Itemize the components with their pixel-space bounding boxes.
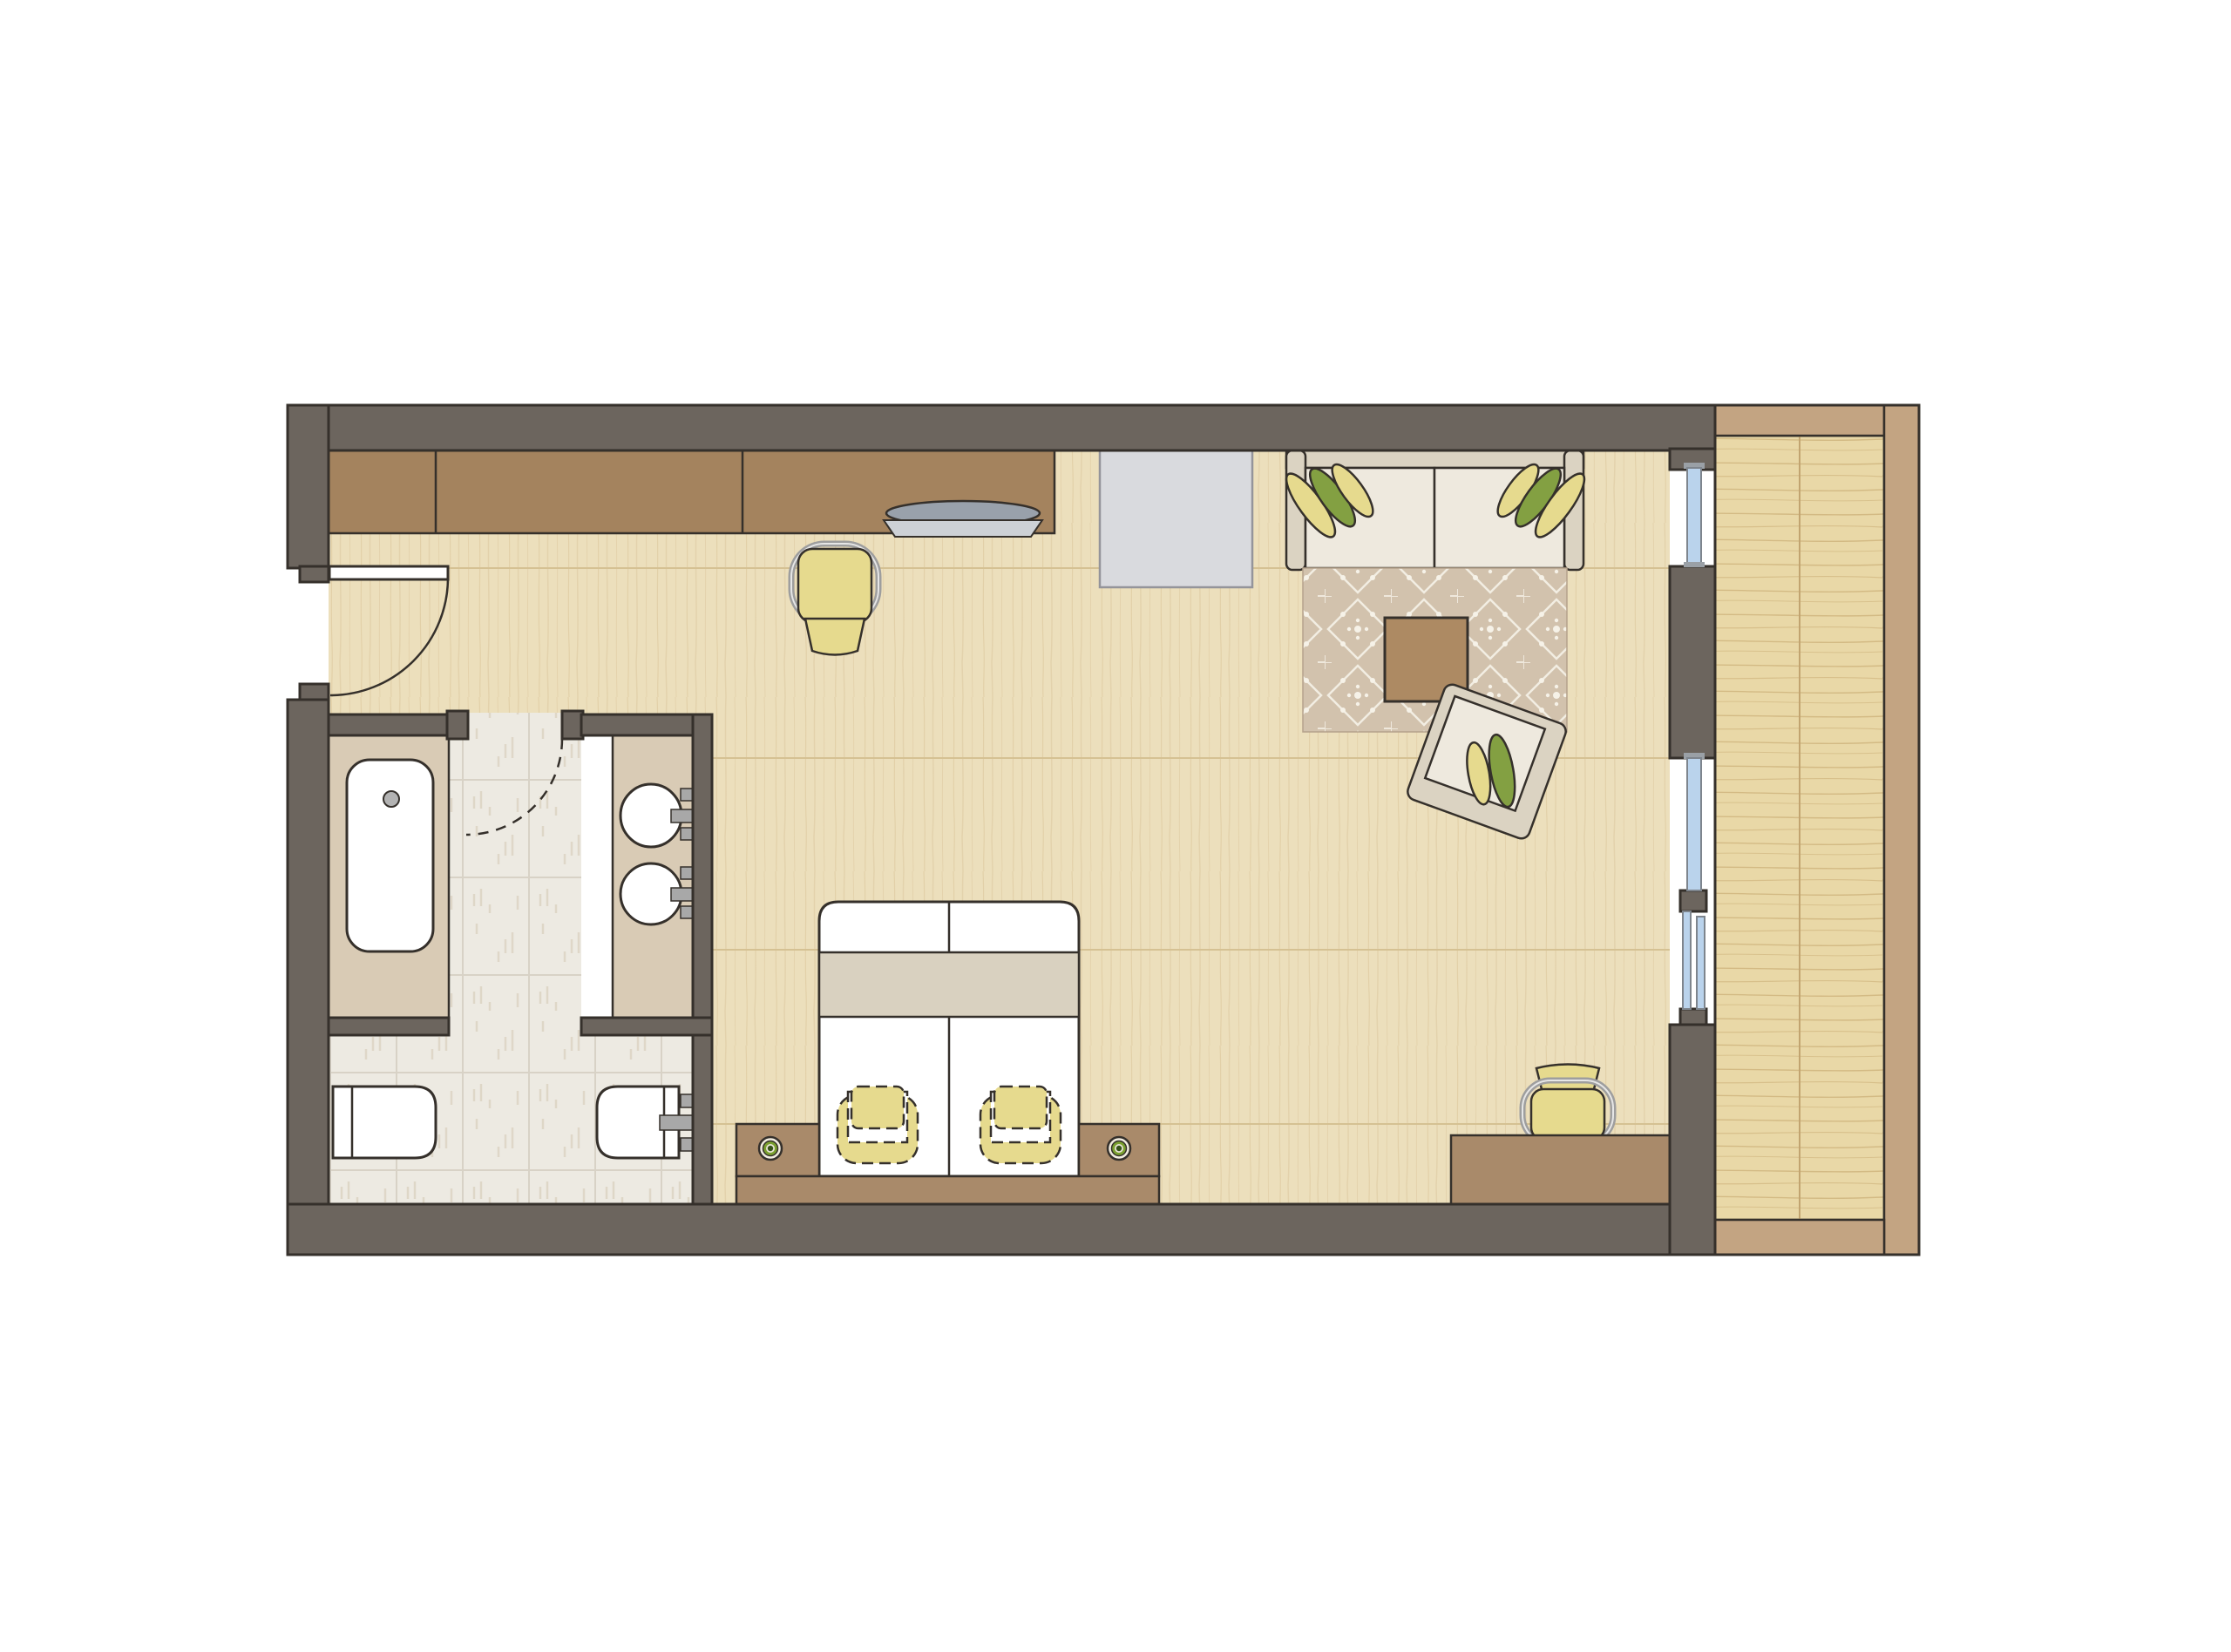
balcony-rail-top — [1715, 405, 1884, 436]
bathroom-wall-top-left — [329, 714, 449, 735]
balcony-sliding-door-leaf-1 — [1683, 911, 1691, 1009]
bed-pillow-right — [980, 1087, 1061, 1163]
bathtub — [347, 760, 433, 951]
desk-chair-bottom-seat — [1531, 1089, 1604, 1140]
desk-chair-top-backrest — [805, 619, 865, 655]
bathroom-door-post-right — [562, 711, 583, 739]
entry-door-post-top — [300, 566, 329, 582]
bidet — [333, 1087, 436, 1158]
window-lower-glass — [1687, 758, 1701, 890]
sofa — [1279, 450, 1592, 570]
window-divider — [1680, 890, 1706, 911]
wall-right-bottom-stub — [1670, 1025, 1719, 1255]
table-lamp-right — [1108, 1137, 1130, 1160]
desk-chair-top-seat — [798, 549, 871, 622]
balcony-rail-right — [1884, 405, 1919, 1255]
headboard-board — [736, 1176, 1159, 1205]
laptop-icon — [884, 501, 1042, 537]
table-lamp-left — [759, 1137, 782, 1160]
bathtub-drain-icon — [383, 791, 399, 807]
bed-runner — [819, 952, 1079, 1017]
sofa-back — [1286, 450, 1583, 468]
floor-plan-canvas — [0, 0, 2231, 1652]
floor-plan — [0, 0, 2231, 1652]
bathroom-corridor-tiles — [449, 713, 581, 1035]
wall-left-lower — [288, 700, 329, 1255]
balcony-sliding-door-leaf-2 — [1697, 917, 1705, 1009]
bathroom-wall-right — [693, 714, 712, 1204]
balcony-rail-bottom — [1715, 1220, 1884, 1255]
wall-top — [288, 405, 1715, 450]
bathroom-wall-mid-left — [329, 1018, 449, 1035]
bed-pillow-left — [837, 1087, 918, 1163]
wall-bottom — [288, 1204, 1715, 1255]
luggage-rack — [1100, 450, 1252, 587]
entry-door-post-bottom — [300, 684, 329, 700]
window-pier — [1670, 566, 1719, 758]
window-end-cap — [1680, 1009, 1706, 1025]
writing-desk — [1451, 1135, 1671, 1205]
wall-left-upper — [288, 405, 329, 568]
bathroom-wall-mid-right — [581, 1018, 712, 1035]
balcony — [1715, 405, 1919, 1255]
entry-door-leaf — [329, 566, 448, 579]
bathroom-door-post-left — [447, 711, 468, 739]
window-upper-glass — [1687, 468, 1701, 566]
